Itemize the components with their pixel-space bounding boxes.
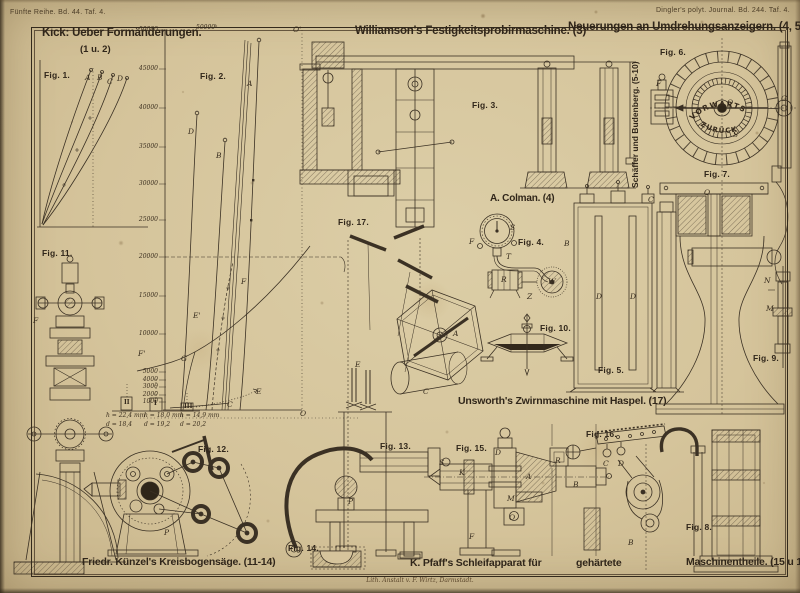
fig11-label: Fig. 11. <box>42 249 72 258</box>
fig14-label: Fig. 14. <box>288 544 319 553</box>
fig4-letter-w: W <box>548 278 556 286</box>
fig8-drawing <box>661 429 778 572</box>
fig9-letter-m: M <box>766 305 774 313</box>
fig13-label: Fig. 13. <box>380 442 411 451</box>
title-schaeffer: Schäffer und Budenberg. (5-10) <box>631 61 640 188</box>
fig2-tick: 40000 <box>132 105 158 111</box>
fig5-letter-d1: D <box>596 293 602 301</box>
fig9-label: Fig. 9. <box>753 354 779 363</box>
fig12-letter-p: P <box>164 529 169 537</box>
fig5-drawing <box>566 181 684 393</box>
fig2-annotation-d3: d = 20,2 <box>180 422 206 428</box>
scan-edge-bottom <box>0 588 800 593</box>
fig4-letter-z: Z <box>527 293 532 301</box>
fig3-drawing <box>300 42 636 227</box>
fig16-letter-d: D <box>618 460 624 468</box>
fig16-letter-c: C <box>603 460 609 468</box>
lithographer-credit: Lith. Anstalt v. F. Wirtz, Darmstadt. <box>330 578 510 584</box>
fig13-letter-p: P <box>348 498 353 506</box>
fig5-letter-b: B <box>564 240 570 248</box>
dial-vorwaerts-label: VORWÄRTS <box>688 99 748 121</box>
fig2-tick: 30000 <box>132 181 158 187</box>
scan-edge-top <box>0 0 800 3</box>
fig2-curve-c: C <box>227 401 233 409</box>
fig17-letter-c: C <box>423 388 429 396</box>
fig4-label: Fig. 4. <box>518 238 544 247</box>
title-pfaff-part2: gehärtete <box>576 558 621 569</box>
fig1-curve-a: A <box>85 74 90 82</box>
title-kick: Kick: Ueber Formänderungen. <box>42 28 201 40</box>
fig2-tick: 5000 <box>132 369 158 375</box>
fig2-curve-b: B <box>216 152 222 160</box>
fig2-curve-e: E <box>256 388 261 396</box>
fig4-letter-s: S <box>510 224 515 232</box>
fig15-label: Fig. 15. <box>456 444 487 453</box>
fig15-letter-r: R <box>555 457 561 465</box>
title-colman: A. Colman. (4) <box>490 194 554 204</box>
fig2-annotation-d2: d = 19,2 <box>144 422 170 428</box>
fig2-curve-f-prime: F' <box>138 350 145 358</box>
title-pfaff-part1: K. Pfaff's Schleifapparat für <box>410 558 541 569</box>
fig2-tick: 45000 <box>132 66 158 72</box>
fig15-letter-a: A <box>526 473 531 481</box>
fig5-label: Fig. 5. <box>598 366 624 375</box>
fig2-tick: 25000 <box>132 217 158 223</box>
fig2-label: Fig. 2. <box>200 72 226 81</box>
fig6-letter-g: G <box>781 95 787 103</box>
scan-edge-left <box>0 0 5 593</box>
fig5-letter-d2: D <box>630 293 636 301</box>
fig2-annotation-h1: h = 22,4 mm <box>106 413 145 419</box>
svg-text:VORWÄRTS: VORWÄRTS <box>688 99 748 121</box>
fig17-drawing <box>336 226 483 558</box>
fig2-curve-g: G <box>181 355 187 363</box>
fig16-letter-b: B <box>628 539 634 547</box>
fig7-label: Fig. 7. <box>704 170 730 179</box>
title-unsworth: Unsworth's Zwirnmaschine mit Haspel. (17… <box>458 396 666 407</box>
fig1-curve-c: C <box>107 78 113 86</box>
fig2-curve-a: A <box>247 80 252 88</box>
lithograph-plate-scan: VORWÄRTS ZURÜCK Fünfte Reihe. Bd. 44. Ta… <box>0 0 800 593</box>
fig17-label: Fig. 17. <box>338 218 369 227</box>
fig15-letter-k: K <box>459 469 465 477</box>
fig2-curve-e-prime: E' <box>193 312 201 320</box>
journal-note: Dingler's polyt. Journal. Bd. 244. Taf. … <box>600 7 790 14</box>
fig1-curve-d: D <box>117 75 123 83</box>
fig7-drawing <box>656 166 788 414</box>
fig16-drawing <box>566 424 666 572</box>
fig2-curve-d: D <box>188 128 194 136</box>
fig12-label: Fig. 12. <box>198 445 229 454</box>
title-kick-ref: (1 u. 2) <box>80 45 111 55</box>
fig6-drawing <box>650 38 797 178</box>
fig15-letter-s: S <box>439 459 444 467</box>
engraving-artwork: VORWÄRTS ZURÜCK <box>0 0 800 593</box>
fig2-annotation-d1: d = 18,4 <box>106 422 132 428</box>
fig15-drawing <box>424 424 612 556</box>
fig15-letter-b: B <box>573 481 579 489</box>
fig2-origin: O <box>300 410 306 418</box>
scan-edge-right <box>795 0 800 593</box>
title-kuenzel: Friedr. Künzel's Kreisbogensäge. (11-14) <box>82 557 275 568</box>
fig2-annotation-h2: h = 18,0 mm <box>144 413 183 419</box>
fig8-label: Fig. 8. <box>686 523 712 532</box>
fig15-letter-d: D <box>495 449 501 457</box>
fig11-letter-f: F <box>33 317 38 325</box>
fig6-letter-o: O <box>727 99 733 107</box>
fig2-origin-prime: O' <box>293 26 301 34</box>
fig15-letter-f: F <box>469 533 474 541</box>
fig4-letter-f: F <box>469 238 474 246</box>
fig2-tick: 10000 <box>132 331 158 337</box>
fig15-letter-o: O <box>509 514 515 522</box>
fig2-tick: 3000 <box>132 384 158 390</box>
fig10-label: Fig. 10. <box>540 324 571 333</box>
fig1-label: Fig. 1. <box>44 71 70 80</box>
fig2-tick: 20000 <box>132 254 158 260</box>
fig16-label: Fig. 16. <box>586 430 617 439</box>
fig5-letter-c: C <box>648 196 654 204</box>
fig4-letter-t: T <box>506 253 511 261</box>
fig2-tick: 15000 <box>132 293 158 299</box>
fig2-annotation-h3: h = 14,9 mm <box>180 413 219 419</box>
fig17-letter-a: A <box>453 330 458 338</box>
fig2-drawing <box>112 30 358 418</box>
fig9-letter-n: N <box>764 277 771 285</box>
title-umdrehung: Neuerungen an Umdrehungsanzeigern. (4, 5… <box>568 22 800 34</box>
title-pfaff-part3: Maschinentheile. (15 u 16) <box>686 557 800 568</box>
fig2-tick: 50000 <box>132 27 158 33</box>
fig14-drawing <box>311 547 365 569</box>
fig3-label: Fig. 3. <box>472 101 498 110</box>
fig12-drawing <box>84 436 256 556</box>
fig1-curve-b: B <box>97 74 103 82</box>
title-williamson: Williamson's Festigkeitsprobirmaschine. … <box>355 26 586 38</box>
fig2-specimen-3: III <box>184 404 192 410</box>
fig2-specimen-1: I <box>154 401 157 407</box>
fig4-letter-r: R <box>501 276 507 284</box>
fig2-curve-f: F <box>241 278 246 286</box>
fig2-specimen-2: II <box>124 400 130 406</box>
fig15-letter-m: M <box>507 495 515 503</box>
series-note: Fünfte Reihe. Bd. 44. Taf. 4. <box>10 9 106 16</box>
fig17-letter-e: E <box>355 361 360 369</box>
fig2-tick: 35000 <box>132 144 158 150</box>
fig6-letter-s: S <box>733 131 738 139</box>
fig6-label: Fig. 6. <box>660 48 686 57</box>
fig7-letter-o: O <box>704 189 710 197</box>
fig6-letter-f: F <box>656 80 661 88</box>
fig2-top-annotation: 50000ᵏ <box>196 25 217 31</box>
